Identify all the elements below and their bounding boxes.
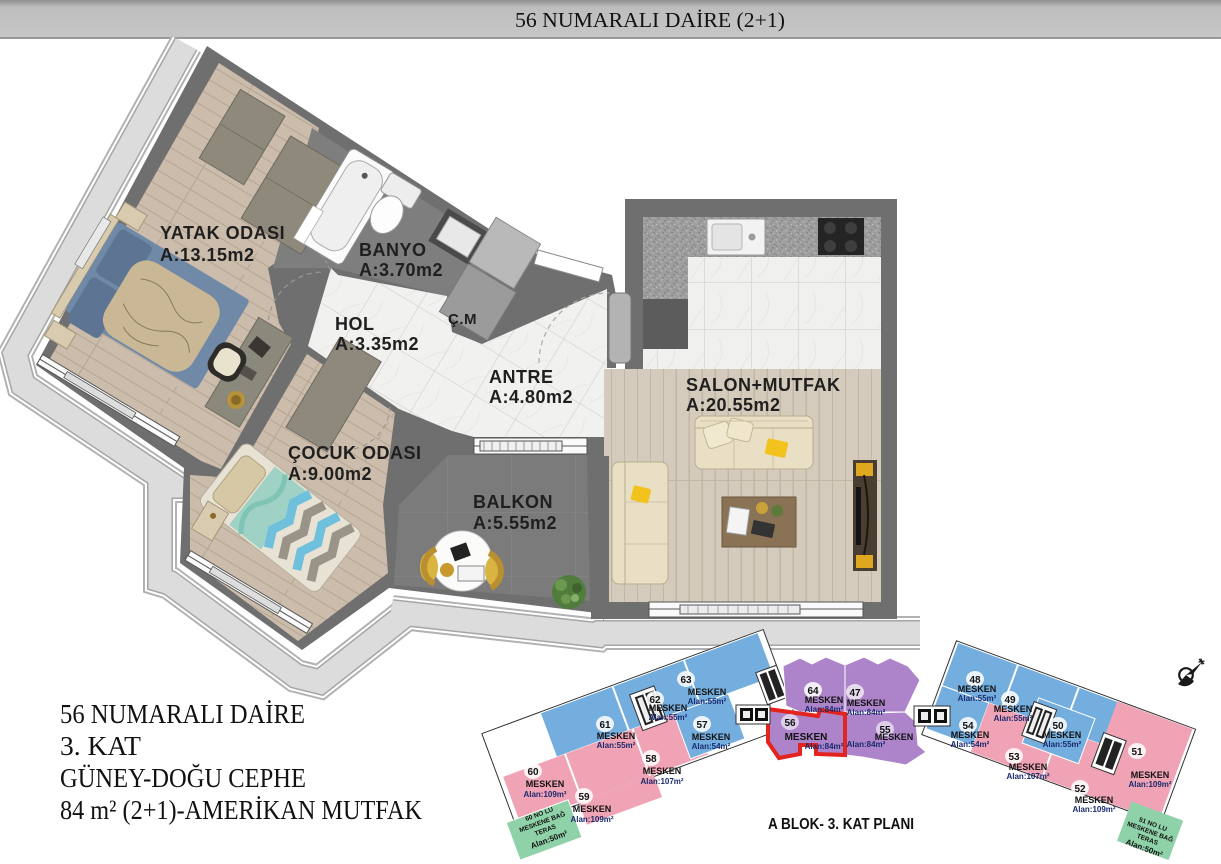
svg-text:60: 60 [527,767,539,778]
svg-text:Alan:107m²: Alan:107m² [1006,772,1049,781]
svg-text:MESKEN: MESKEN [692,732,731,742]
svg-text:A:13.15m2: A:13.15m2 [160,245,255,265]
svg-text:59: 59 [578,792,590,803]
svg-text:MESKEN: MESKEN [526,779,565,789]
svg-text:MESKEN: MESKEN [994,704,1033,714]
svg-text:YATAK ODASI: YATAK ODASI [160,223,285,243]
svg-text:MESKEN: MESKEN [649,703,688,713]
svg-text:A:5.55m2: A:5.55m2 [473,513,557,533]
svg-text:ÇOCUK ODASI: ÇOCUK ODASI [288,443,422,463]
svg-text:Ç.M: Ç.M [448,311,477,328]
svg-text:Alan:55m²: Alan:55m² [958,694,997,703]
svg-text:Alan:84m²: Alan:84m² [805,705,844,714]
svg-text:Alan:55m²: Alan:55m² [1043,740,1082,749]
svg-text:Alan:54m²: Alan:54m² [951,740,990,749]
svg-text:A:20.55m2: A:20.55m2 [686,395,781,415]
svg-text:MESKEN: MESKEN [1043,730,1082,740]
svg-text:56: 56 [784,718,796,729]
svg-text:MESKEN: MESKEN [597,731,636,741]
svg-text:A BLOK- 3. KAT PLANI: A BLOK- 3. KAT PLANI [768,816,914,833]
svg-text:Alan:84m²: Alan:84m² [847,740,886,749]
svg-text:3. KAT: 3. KAT [60,730,141,761]
svg-text:Alan:109m²: Alan:109m² [1072,805,1115,814]
svg-text:Alan:55m²: Alan:55m² [688,697,727,706]
svg-text:52: 52 [1074,784,1086,795]
svg-text:BANYO: BANYO [359,240,427,260]
svg-text:MESKEN: MESKEN [1009,762,1048,772]
svg-text:84 m² (2+1)-AMERİKAN MUTFAK: 84 m² (2+1)-AMERİKAN MUTFAK [60,794,422,825]
svg-text:Alan:109m²: Alan:109m² [1128,780,1171,789]
svg-text:MESKEN: MESKEN [951,730,990,740]
svg-text:Alan:107m²: Alan:107m² [640,777,683,786]
svg-text:MESKEN: MESKEN [1075,795,1114,805]
svg-text:Alan:84m²: Alan:84m² [805,742,844,751]
svg-text:Alan:55m²: Alan:55m² [597,741,636,750]
svg-text:58: 58 [645,754,657,765]
svg-text:MESKEN: MESKEN [573,804,612,814]
svg-text:A:3.35m2: A:3.35m2 [335,334,419,354]
svg-text:A:3.70m2: A:3.70m2 [359,260,443,280]
svg-text:A:9.00m2: A:9.00m2 [288,464,372,484]
svg-text:63: 63 [680,675,692,686]
svg-text:MESKEN: MESKEN [688,687,727,697]
svg-text:Alan:54m²: Alan:54m² [692,742,731,751]
svg-text:Alan:109m²: Alan:109m² [523,790,566,799]
svg-text:56 NUMARALI DAİRE: 56 NUMARALI DAİRE [60,698,305,729]
svg-text:57: 57 [696,720,708,731]
svg-text:MESKEN: MESKEN [847,698,886,708]
svg-text:SALON+MUTFAK: SALON+MUTFAK [686,375,841,395]
svg-text:HOL: HOL [335,314,375,334]
svg-text:MESKEN: MESKEN [958,684,997,694]
svg-text:MESKEN: MESKEN [1131,770,1170,780]
svg-text:GÜNEY-DOĞU CEPHE: GÜNEY-DOĞU CEPHE [60,762,306,793]
svg-text:MESKEN: MESKEN [643,766,682,776]
svg-text:51: 51 [1131,747,1143,758]
svg-text:A:4.80m2: A:4.80m2 [489,387,573,407]
svg-text:Alan:84m²: Alan:84m² [847,708,886,717]
svg-text:61: 61 [599,720,611,731]
svg-text:Alan:55m²: Alan:55m² [994,714,1033,723]
svg-text:Alan:109m²: Alan:109m² [570,815,613,824]
svg-text:ANTRE: ANTRE [489,367,554,387]
svg-text:Alan:55m²: Alan:55m² [649,713,688,722]
svg-text:MESKEN: MESKEN [805,695,844,705]
svg-text:56 NUMARALI DAİRE (2+1): 56 NUMARALI DAİRE (2+1) [515,8,785,32]
svg-text:BALKON: BALKON [473,492,553,512]
